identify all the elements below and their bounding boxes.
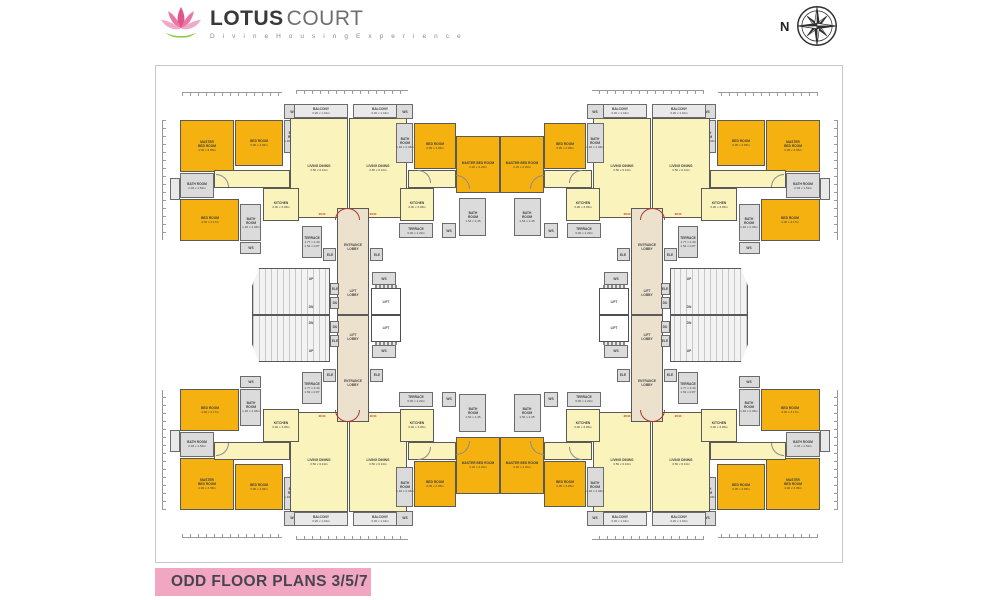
room-bath-room-5: BATH ROOM1.54 x 2.45 (514, 394, 541, 432)
room-living-dining-label: LIVING DINING3.50 x 6.10m (290, 164, 348, 172)
room-bed-room-3: BED ROOM3.05 x 3.05m (414, 123, 456, 169)
room-living-dining-2-label: LIVING DINING3.50 x 6.10m (349, 458, 407, 466)
room-bed-room: BED ROOM3.05 x 3.05m (717, 120, 765, 166)
quadrant-bottom-left: MASTER BED ROOM4.06 x 3.35mBED ROOM3.05 … (156, 315, 500, 550)
dim-ticks-top (182, 534, 282, 538)
stairs-dn-label: DN (300, 318, 322, 328)
dim-ticks-left (834, 390, 838, 510)
room-bath-room-2: BATH ROOM2.03 x 1.52m (180, 173, 214, 198)
lotus-logo: LOTUSCOURT D i v i n e H o u s i n g E x… (158, 4, 464, 44)
room-bed-room-3: BED ROOM3.05 x 3.05m (544, 461, 586, 507)
room-terrace-2: TERRACE3.00 x 1.22m (399, 223, 433, 238)
entry-marker-2: 2044 (362, 210, 384, 218)
room-bed-room-label: BED ROOM3.05 x 3.05m (712, 483, 770, 491)
room-balcony: BALCONY3.20 x 1.01m (652, 104, 706, 118)
floor-plan-title-banner: ODD FLOOR PLANS 3/5/7 (155, 568, 371, 596)
stairs-up-label: UP (678, 274, 700, 284)
room-terrace-2-label: TERRACE3.00 x 1.22m (555, 227, 613, 235)
room-bed-room-label: BED ROOM3.05 x 3.05m (230, 483, 288, 491)
room-bath-room-2: BATH ROOM2.03 x 1.52m (786, 432, 820, 457)
room-kitchen: KITCHEN3.00 x 3.05m (263, 409, 299, 442)
ws-box-5: WS (604, 272, 628, 285)
entry-marker-2: 2044 (616, 412, 638, 420)
entrance-lobby-label: ENTRANCE LOBBY (631, 374, 663, 392)
room-master-bed-room-label: MASTER BED ROOM4.06 x 3.35m (178, 140, 236, 152)
room-bath-room-3: BATH ROOM1.46 x 2.46m (739, 204, 760, 241)
ws-box-3: WS (587, 511, 604, 526)
ws-box-4: WS (544, 392, 558, 407)
ws-box-4: WS (442, 223, 456, 238)
room-living-dining-2-label: LIVING DINING3.50 x 6.10m (349, 164, 407, 172)
ws-box-2: WS (739, 242, 760, 254)
room-bath-room-5-label: BATH ROOM1.54 x 2.45 (499, 407, 557, 419)
lift-lobby-label: LIFT LOBBY (631, 284, 663, 302)
shaft-ele-2: ELE (370, 369, 383, 382)
dim-ticks-top (718, 534, 818, 538)
room-kitchen: KITCHEN3.00 x 3.05m (701, 188, 737, 221)
room-bed-room-2: BED ROOM4.06 x 3.17m (180, 199, 239, 241)
dim-ticks-top-2 (296, 90, 408, 94)
shaft-ele-2: ELE (370, 248, 383, 261)
lift: LIFT (599, 315, 629, 342)
room-bath-room-4: BATH ROOM1.46 x 2.46m (587, 123, 604, 163)
room-terrace: TERRACE1.77 x 4.39 1.54 x 0.87 (302, 226, 322, 258)
shaft-ele-2: ELE (617, 369, 630, 382)
room-bath-room-5: BATH ROOM1.54 x 2.45 (459, 198, 486, 236)
room-balcony: BALCONY3.20 x 1.01m (652, 512, 706, 526)
dim-ticks-top-2 (296, 536, 408, 540)
entry-marker: 2044 (311, 210, 333, 218)
room-master-bed-room-2-label: MASTER BED ROOM3.20 x 4.20m (449, 462, 507, 470)
shaft-ele: ELE (323, 248, 336, 261)
room-living-dining-2-label: LIVING DINING3.50 x 6.10m (593, 164, 651, 172)
lift-lobby-label: LIFT LOBBY (337, 284, 369, 302)
ws-box-2-label: WS (222, 380, 280, 384)
room-bed-room-label: BED ROOM3.05 x 3.05m (712, 139, 770, 147)
room-bath-room-3: BATH ROOM1.46 x 2.46m (739, 389, 760, 426)
quadrant-bottom-right: MASTER BED ROOM4.06 x 3.35mBED ROOM3.05 … (500, 315, 844, 550)
room-kitchen: KITCHEN3.00 x 3.05m (701, 409, 737, 442)
room-master-bed-room: MASTER BED ROOM4.06 x 3.35m (766, 120, 820, 172)
dim-ticks-top (718, 92, 818, 96)
room-master-bed-room-2-label: MASTER BED ROOM3.20 x 4.20m (493, 161, 551, 169)
corridor-2 (408, 170, 456, 188)
room-bath-room-5: BATH ROOM1.54 x 2.45 (514, 198, 541, 236)
stairs-dn-label: DN (300, 302, 322, 312)
page: LOTUSCOURT D i v i n e H o u s i n g E x… (0, 0, 1000, 600)
dim-ticks-left (834, 120, 838, 240)
room-balcony-label: BALCONY3.20 x 1.01m (292, 107, 350, 115)
entry-marker: 2044 (311, 412, 333, 420)
room-terrace: TERRACE1.77 x 4.39 1.54 x 0.87 (678, 372, 698, 404)
north-indicator: N (780, 4, 839, 48)
lift-lobby-label: LIFT LOBBY (337, 328, 369, 346)
room-kitchen-2: KITCHEN3.00 x 3.05m (566, 409, 600, 442)
ws-box-2: WS (240, 376, 261, 388)
entry-marker-2: 2044 (362, 412, 384, 420)
lift: LIFT (371, 315, 401, 342)
room-balcony: BALCONY3.20 x 1.01m (294, 512, 348, 526)
ws-box-5: WS (372, 345, 396, 358)
room-bed-room-2: BED ROOM4.06 x 3.17m (180, 389, 239, 431)
room-master-bed-room: MASTER BED ROOM4.06 x 3.35m (180, 120, 234, 172)
room-terrace-2-label: TERRACE3.00 x 1.22m (555, 396, 613, 404)
floor-plan-card: MASTER BED ROOM4.06 x 3.35mBED ROOM3.05 … (155, 65, 843, 563)
room-balcony-label: BALCONY3.20 x 1.01m (292, 515, 350, 523)
shaft-ele: ELE (323, 369, 336, 382)
lotus-flower-icon (158, 4, 204, 44)
ws-box-2: WS (739, 376, 760, 388)
shaft-ele-2: ELE (617, 248, 630, 261)
lift-lobby-label: LIFT LOBBY (631, 328, 663, 346)
room-master-bed-room-label: MASTER BED ROOM4.06 x 3.35m (764, 140, 822, 152)
dim-ticks-top-2 (592, 90, 704, 94)
brand-text: LOTUSCOURT D i v i n e H o u s i n g E x… (210, 8, 464, 40)
room-bed-room-2-label: BED ROOM4.06 x 3.17m (762, 406, 820, 414)
room-bed-room-2-label: BED ROOM4.06 x 3.17m (762, 216, 820, 224)
room-living-dining-label: LIVING DINING3.50 x 6.10m (652, 458, 710, 466)
quadrant-top-left: MASTER BED ROOM4.06 x 3.35mBED ROOM3.05 … (156, 80, 500, 315)
dim-ticks-top-2 (592, 536, 704, 540)
room-kitchen: KITCHEN3.00 x 3.05m (263, 188, 299, 221)
ws-box-2-label: WS (721, 380, 779, 384)
room-bed-room: BED ROOM3.05 x 3.05m (717, 464, 765, 510)
window-bay (820, 178, 830, 200)
stairs-up-label: UP (300, 274, 322, 284)
room-bed-room-2: BED ROOM4.06 x 3.17m (761, 389, 820, 431)
room-balcony-label: BALCONY3.20 x 1.01m (650, 515, 708, 523)
entry-marker: 2044 (667, 210, 689, 218)
room-terrace: TERRACE1.77 x 4.39 1.54 x 0.87 (678, 226, 698, 258)
room-bed-room-3: BED ROOM3.05 x 3.05m (544, 123, 586, 169)
window-bay (170, 430, 180, 452)
room-bath-room-4: BATH ROOM1.46 x 2.46m (396, 467, 413, 507)
ws-box-5: WS (372, 272, 396, 285)
room-terrace-2-label: TERRACE3.00 x 1.22m (387, 396, 445, 404)
stairs-up-label: UP (678, 346, 700, 356)
entry-marker: 2044 (667, 412, 689, 420)
room-bath-room-5-label: BATH ROOM1.54 x 2.45 (444, 407, 502, 419)
window-bay (170, 178, 180, 200)
entrance-lobby-label: ENTRANCE LOBBY (631, 238, 663, 256)
room-master-bed-room: MASTER BED ROOM4.06 x 3.35m (180, 458, 234, 510)
room-master-bed-room-2-label: MASTER BED ROOM3.20 x 4.20m (493, 462, 551, 470)
brand-court: COURT (287, 7, 364, 30)
room-bath-room-5: BATH ROOM1.54 x 2.45 (459, 394, 486, 432)
room-bed-room-2-label: BED ROOM4.06 x 3.17m (181, 216, 239, 224)
room-bed-room-label: BED ROOM3.05 x 3.05m (230, 139, 288, 147)
entrance-lobby-label: ENTRANCE LOBBY (337, 238, 369, 256)
entry-marker-2: 2044 (616, 210, 638, 218)
ws-box-2: WS (240, 242, 261, 254)
stairs-dn-label: DN (678, 302, 700, 312)
room-balcony: BALCONY3.20 x 1.01m (294, 104, 348, 118)
stairs-up-label: UP (300, 346, 322, 356)
room-terrace: TERRACE1.77 x 4.39 1.54 x 0.87 (302, 372, 322, 404)
dim-ticks-left (162, 390, 166, 510)
ws-box-5: WS (604, 345, 628, 358)
room-terrace-2: TERRACE3.00 x 1.22m (399, 392, 433, 407)
room-bath-room-3: BATH ROOM1.46 x 2.46m (240, 389, 261, 426)
room-bath-room-2: BATH ROOM2.03 x 1.52m (180, 432, 214, 457)
room-kitchen-2: KITCHEN3.00 x 3.05m (400, 409, 434, 442)
lift: LIFT (599, 288, 629, 315)
corridor-2 (544, 442, 592, 460)
room-bath-room-5-label: BATH ROOM1.54 x 2.45 (499, 211, 557, 223)
north-label: N (780, 19, 789, 34)
dim-ticks-top (182, 92, 282, 96)
room-living-dining-label: LIVING DINING3.50 x 6.10m (652, 164, 710, 172)
room-master-bed-room-label: MASTER BED ROOM4.06 x 3.35m (764, 478, 822, 490)
room-bed-room-2-label: BED ROOM4.06 x 3.17m (181, 406, 239, 414)
room-living-dining-2-label: LIVING DINING3.50 x 6.10m (593, 458, 651, 466)
ws-box-3: WS (587, 104, 604, 119)
ws-box-4: WS (544, 223, 558, 238)
shaft-ele: ELE (664, 369, 677, 382)
room-balcony-label: BALCONY3.20 x 1.01m (650, 107, 708, 115)
room-bath-room-3: BATH ROOM1.46 x 2.46m (240, 204, 261, 241)
room-bed-room-3-label: BED ROOM3.05 x 3.05m (536, 142, 594, 150)
floor-plan-title: ODD FLOOR PLANS 3/5/7 (171, 573, 368, 591)
ws-box-3: WS (396, 104, 413, 119)
room-terrace-label: TERRACE1.77 x 4.39 1.54 x 0.87 (283, 382, 341, 394)
room-bed-room: BED ROOM3.05 x 3.05m (235, 120, 283, 166)
compass-rose-icon (795, 4, 839, 48)
room-bed-room: BED ROOM3.05 x 3.05m (235, 464, 283, 510)
room-terrace-2: TERRACE3.00 x 1.22m (567, 392, 601, 407)
room-master-bed-room-label: MASTER BED ROOM4.06 x 3.35m (178, 478, 236, 490)
ws-box-3: WS (396, 511, 413, 526)
room-bed-room-3-label: BED ROOM3.05 x 3.05m (536, 480, 594, 488)
entrance-lobby-label: ENTRANCE LOBBY (337, 374, 369, 392)
room-terrace-2: TERRACE3.00 x 1.22m (567, 223, 601, 238)
room-bed-room-2: BED ROOM4.06 x 3.17m (761, 199, 820, 241)
stairs-dn-label: DN (678, 318, 700, 328)
brand-tagline: D i v i n e H o u s i n g E x p e r i e … (210, 33, 464, 40)
room-terrace-label: TERRACE1.77 x 4.39 1.54 x 0.87 (659, 382, 717, 394)
room-master-bed-room: MASTER BED ROOM4.06 x 3.35m (766, 458, 820, 510)
corridor-2 (408, 442, 456, 460)
ws-box-4: WS (442, 392, 456, 407)
room-bath-room-2: BATH ROOM2.03 x 1.52m (786, 173, 820, 198)
window-bay (820, 430, 830, 452)
room-living-dining-label: LIVING DINING3.50 x 6.10m (290, 458, 348, 466)
room-bed-room-3: BED ROOM3.05 x 3.05m (414, 461, 456, 507)
room-kitchen-2: KITCHEN3.00 x 3.05m (566, 188, 600, 221)
quadrant-top-right: MASTER BED ROOM4.06 x 3.35mBED ROOM3.05 … (500, 80, 844, 315)
lift: LIFT (371, 288, 401, 315)
room-master-bed-room-2-label: MASTER BED ROOM3.20 x 4.20m (449, 161, 507, 169)
room-kitchen-2: KITCHEN3.00 x 3.05m (400, 188, 434, 221)
room-bath-room-4: BATH ROOM1.46 x 2.46m (396, 123, 413, 163)
corridor-2 (544, 170, 592, 188)
brand-lotus: LOTUS (210, 7, 284, 30)
shaft-ele: ELE (664, 248, 677, 261)
dim-ticks-left (162, 120, 166, 240)
room-bath-room-4: BATH ROOM1.46 x 2.46m (587, 467, 604, 507)
floor-plan: MASTER BED ROOM4.06 x 3.35mBED ROOM3.05 … (156, 80, 844, 550)
room-terrace-label: TERRACE1.77 x 4.39 1.54 x 0.87 (659, 236, 717, 248)
ws-box-2-label: WS (222, 246, 280, 250)
room-terrace-label: TERRACE1.77 x 4.39 1.54 x 0.87 (283, 236, 341, 248)
ws-box-2-label: WS (721, 246, 779, 250)
room-terrace-2-label: TERRACE3.00 x 1.22m (387, 227, 445, 235)
room-bath-room-5-label: BATH ROOM1.54 x 2.45 (444, 211, 502, 223)
